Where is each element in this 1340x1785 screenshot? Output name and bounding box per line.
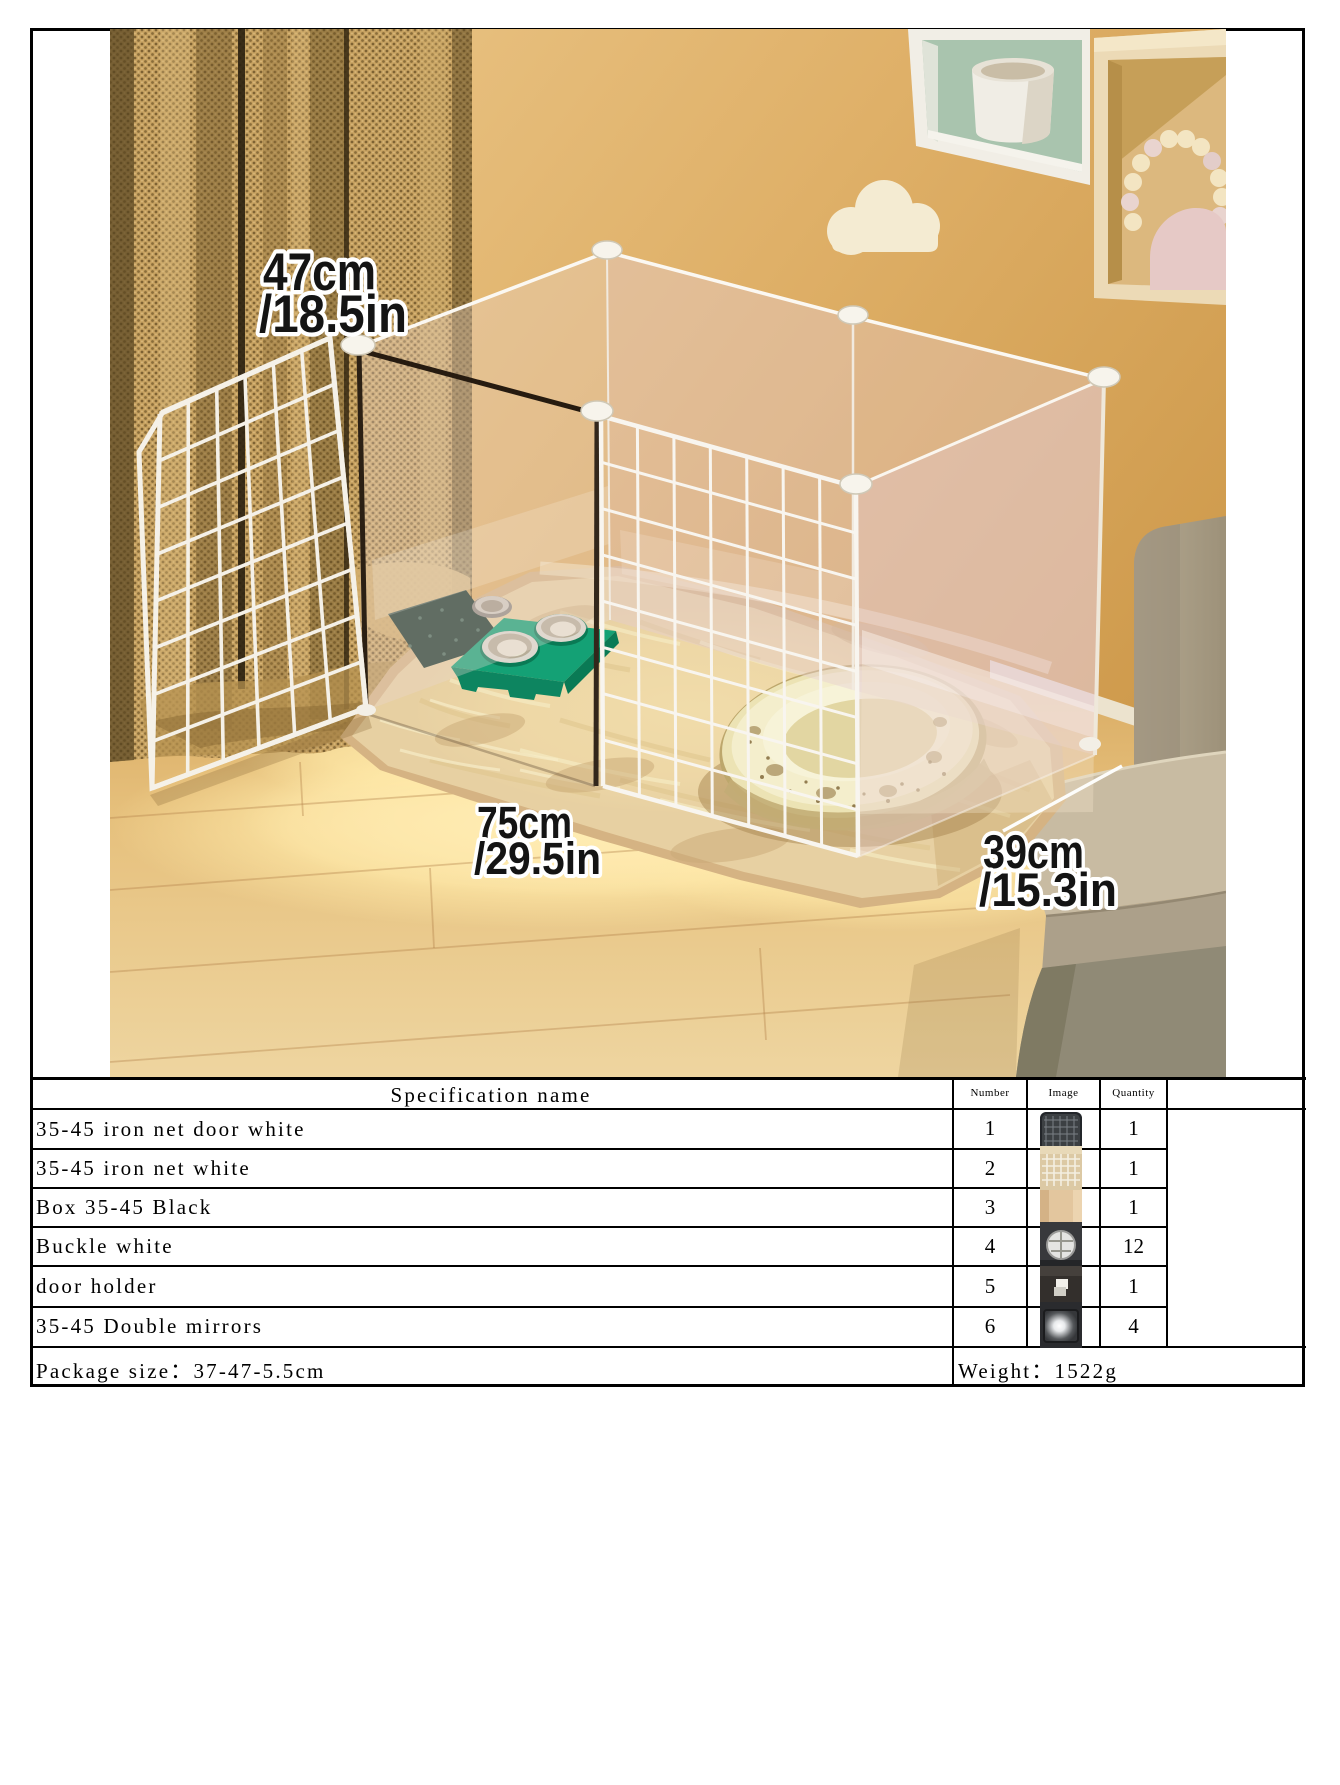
svg-text:/15.3in: /15.3in [979,863,1117,916]
svg-text:/29.5in: /29.5in [474,833,601,884]
svg-text:/18.5in: /18.5in [259,285,407,344]
